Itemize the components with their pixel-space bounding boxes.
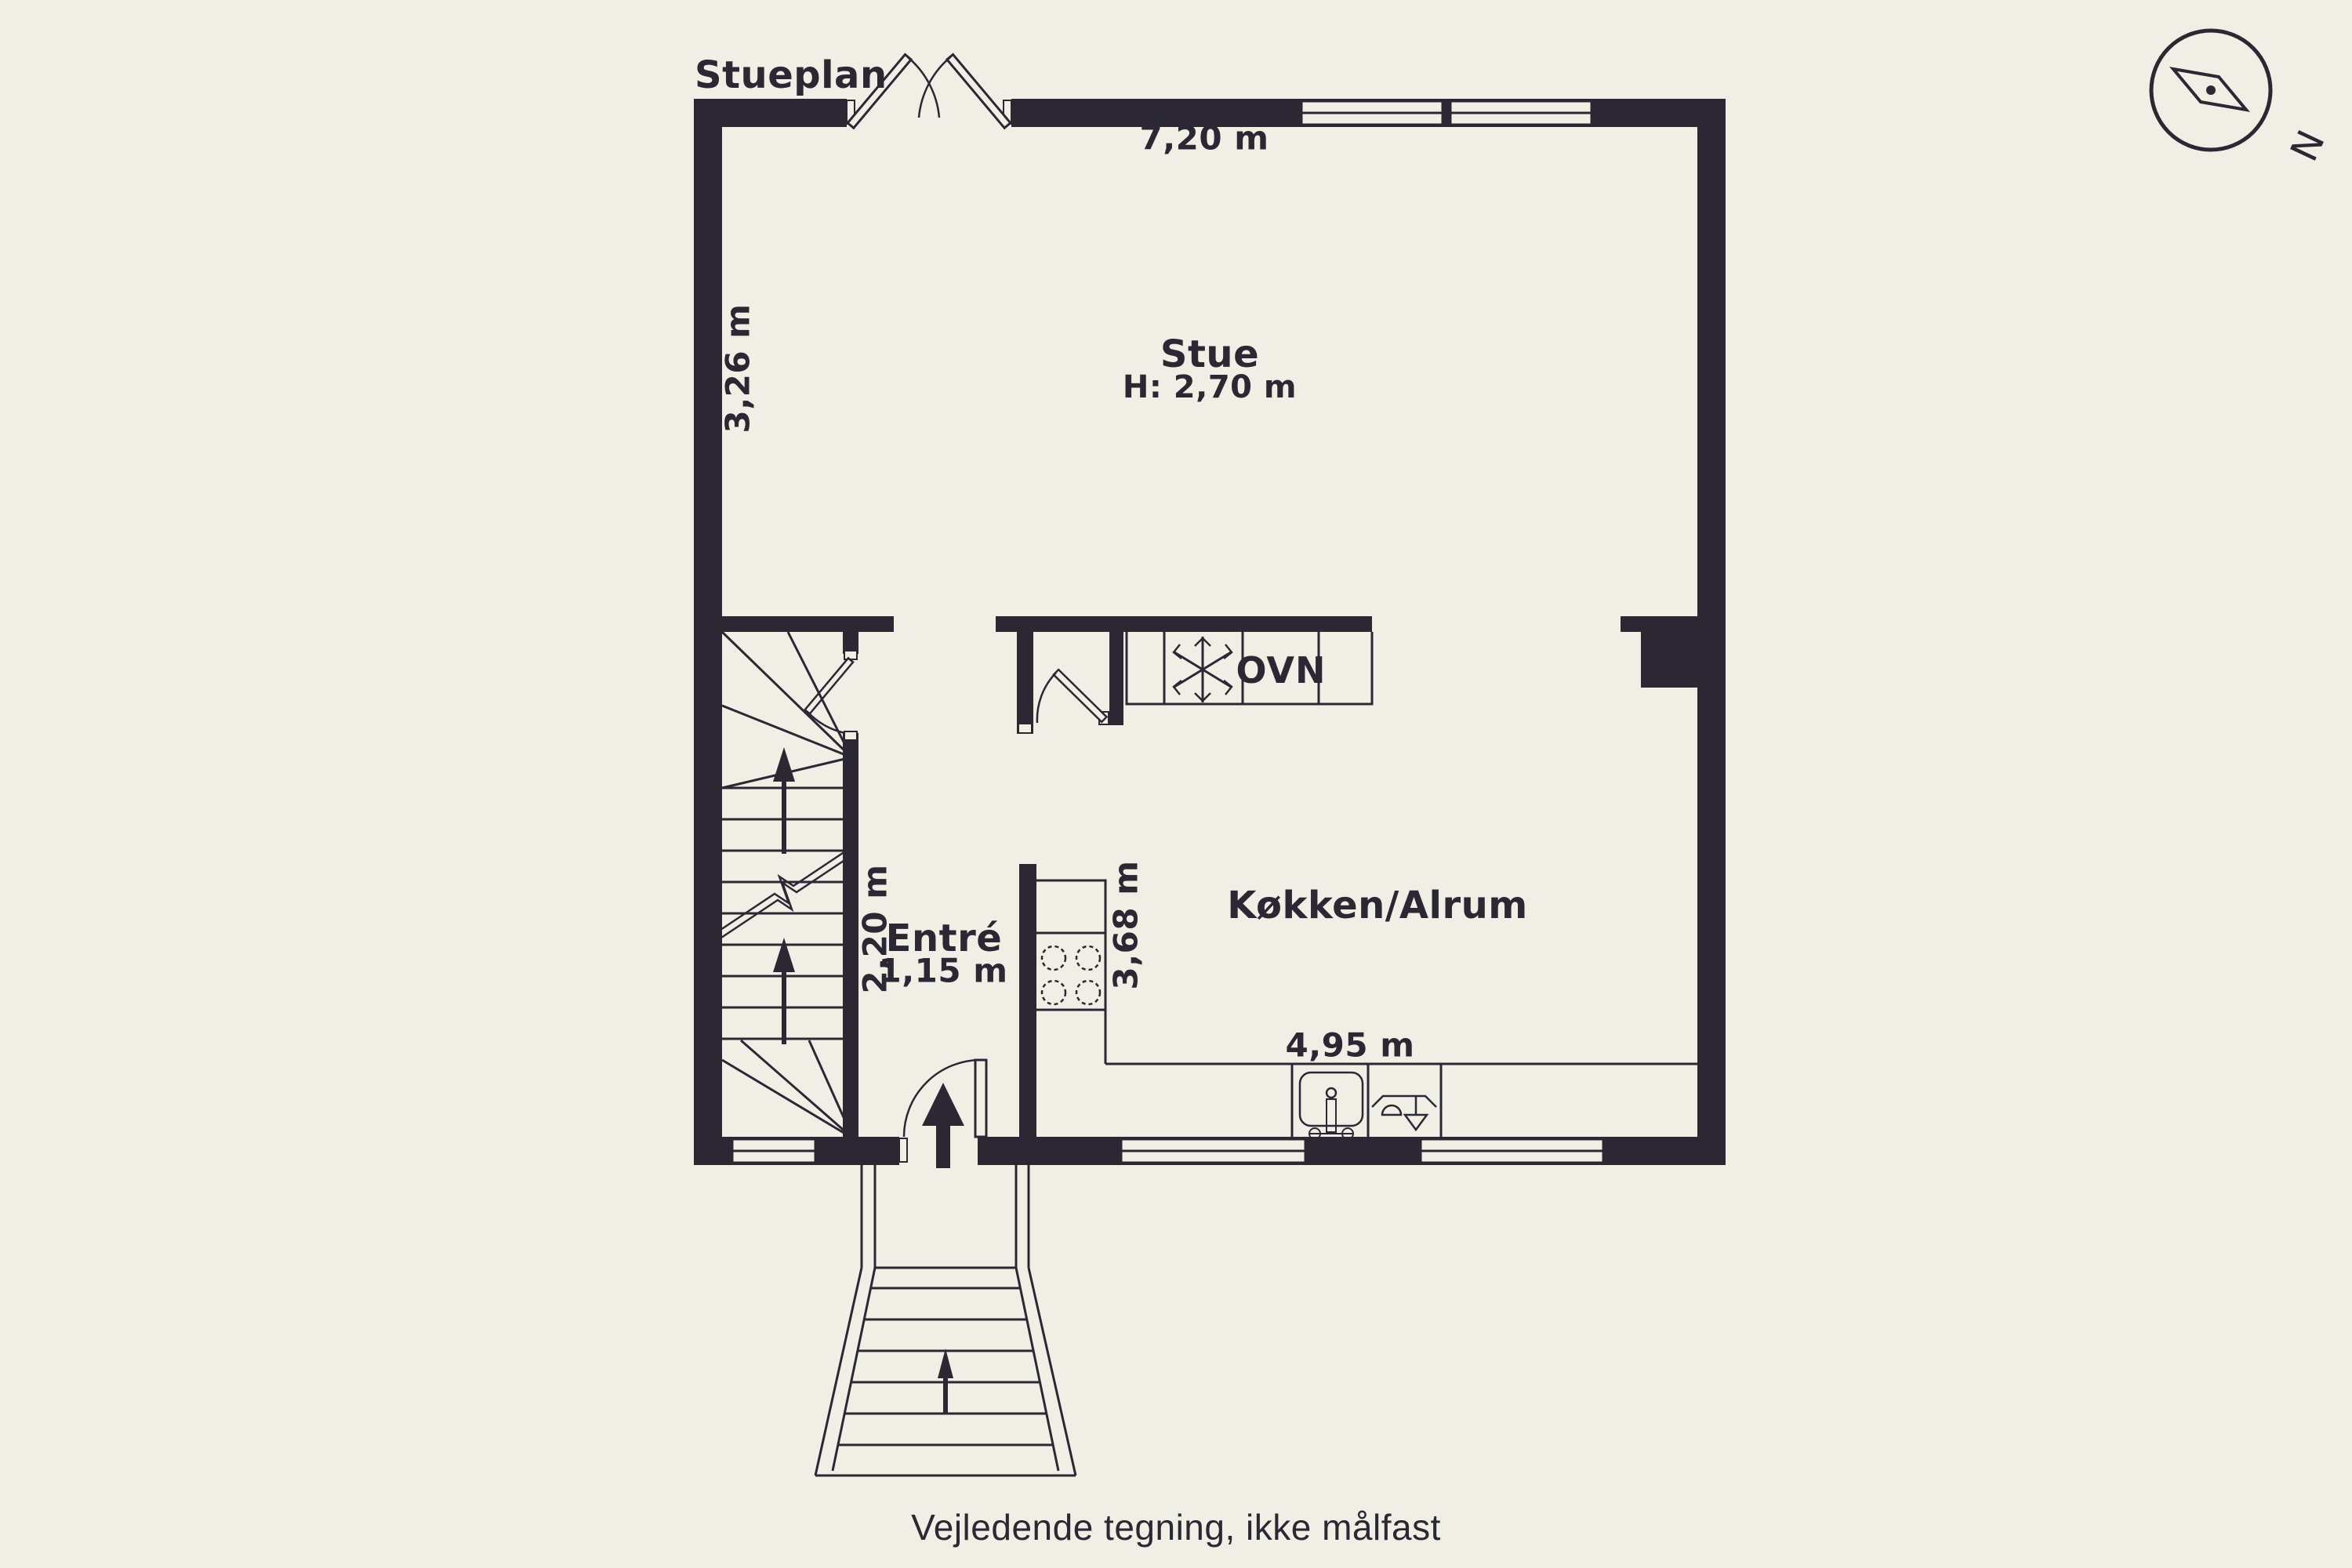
cooktop-icon [1042,946,1100,1004]
compass-icon [2151,31,2270,150]
dimension-entre-width: 1,15 m [878,952,1007,990]
room-label-kitchen: Køkken/Alrum [1227,884,1528,927]
wall-right-block [1641,632,1697,688]
door-leaf [805,658,853,713]
room-height-stue: H: 2,70 m [1123,369,1297,405]
door-jamb-cap [1018,724,1032,733]
stair-break-line [718,848,853,938]
wall-left [694,99,722,1165]
window-bottom-1 [732,1139,815,1163]
door-jamb-cap [899,1138,907,1162]
dimension-kitchen-depth: 3,68 m [1107,860,1145,989]
window-top-1 [1301,101,1443,125]
dimension-stue-width: 7,20 m [1139,119,1269,158]
floorplan-drawing [0,0,2352,1568]
wall-kitchen-door-stub-right [1109,632,1123,725]
page-title: Stueplan [695,53,887,97]
disclaimer-note: Vejledende tegning, ikke målfast [911,1506,1441,1548]
door-jamb-cap [844,651,857,659]
wall-stair-top [722,616,894,632]
counter-left-column [1036,880,1105,1064]
door-swing-arc [808,712,845,733]
door-swing-arc [1037,673,1056,723]
up-arrow [773,938,795,1044]
dimension-kitchen-width: 4,95 m [1285,1026,1414,1065]
window-bottom-2 [1121,1139,1305,1163]
exterior-stair [815,1165,1076,1475]
up-arrow [773,747,795,854]
wall-kitchen-door-stub-left [1017,632,1033,734]
sink-icon [1300,1073,1363,1139]
stair-winders-bottom [722,1040,853,1138]
door-leaf [1054,670,1107,722]
dimension-stue-left: 3,26 m [719,303,757,433]
stairs [718,632,853,1138]
wall-right [1697,99,1726,1165]
wall-kitchen-top [996,616,1372,632]
door-leaf [975,1060,986,1137]
stair-door [805,651,857,740]
window-bottom-3 [1421,1139,1603,1163]
oven-label: OVN [1236,649,1327,691]
compass-center-dot [2206,85,2216,95]
tap-appliance-icon [1372,1096,1436,1130]
door-jamb-cap [844,731,857,740]
wall-right-block-lip [1621,616,1697,632]
window-top-2 [1450,101,1592,125]
snowflake-icon [1174,637,1232,702]
wall-kitchen-left [1019,864,1036,1137]
